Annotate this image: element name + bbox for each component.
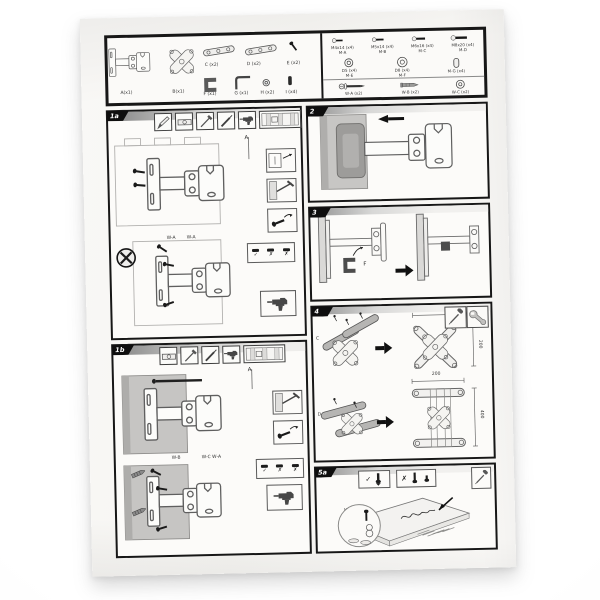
step-tab: 5a [315, 467, 337, 477]
washer-d8-icon [395, 56, 408, 67]
section-step-3: 3 [308, 203, 492, 302]
hardware-item: D8 (x4) M-F [394, 56, 409, 78]
wrench-icon [466, 306, 488, 328]
hardware-item: W-C (x2) [452, 79, 470, 95]
drill-inset-box [266, 484, 303, 511]
concrete-wall-icon [243, 344, 285, 363]
part-i-spacer-icon [288, 76, 292, 85]
cable-clip-diagram [310, 205, 489, 299]
section-step-4: 4 [310, 302, 496, 463]
product-photo: A(x1) B(x1) C (x2) D (x2) E (x2) F (x1) … [0, 0, 600, 600]
hardware-item: M6x16 (x4) M-C [411, 33, 434, 53]
screwdriver-inset-box [471, 467, 491, 489]
depth-mark: ✓ [263, 468, 267, 473]
hardware-size: W-B (x2) [402, 89, 419, 95]
hardware-row-wall: W-A (x2) W-B (x2) W-C [323, 76, 484, 98]
check-mark: ✓ [365, 476, 371, 483]
parts-illustrations [107, 33, 321, 102]
part-f-clip-icon [204, 78, 216, 92]
drill-bit-icon [196, 112, 214, 130]
detail-inset-drilling [266, 178, 297, 203]
lag-bolt-icon [338, 81, 368, 91]
hardware-item: M5x14 (x4) M-B [371, 34, 394, 54]
hardware-row-screws: M4x14 (x4) M-A M5x14 (x4) M-B [322, 30, 484, 58]
drill-bit-icon [180, 346, 198, 364]
depth-mark: ✗ [278, 468, 282, 473]
pencil-icon [154, 113, 172, 131]
screw-depth-guide: ✓ ✗ ✗ [247, 242, 295, 263]
depth-mark: ✗ [269, 252, 273, 257]
section-step-5a: 5a ✓ ✗ [314, 463, 498, 554]
part-b-plate-icon [168, 48, 196, 76]
drill-inset-box [260, 290, 297, 317]
hardware-code: M-C [418, 48, 426, 53]
part-g-allen-key-icon [236, 77, 250, 89]
cable-clip-part [343, 258, 355, 273]
hardware-size: W-C (x2) [452, 89, 469, 95]
section-step-1b: 1b A W-B W-C W-A [111, 340, 312, 558]
hardware-item: M4x14 (x4) M-A [331, 35, 354, 55]
required-tools [159, 344, 285, 365]
screw-too-long-icon [410, 471, 419, 485]
drill-icon [222, 345, 240, 363]
cross-mark: ✗ [401, 475, 407, 482]
screw-too-short-icon [422, 471, 431, 485]
marker-icon [217, 111, 235, 129]
screwdriver-icon [444, 306, 466, 328]
wood-stud-wall-icon [259, 110, 301, 129]
tv-back-diagram [317, 489, 495, 551]
hardware-item: M-G (x4) [447, 58, 465, 75]
detail-inset-screwing [267, 208, 298, 233]
hardware-code: M-E [346, 73, 354, 78]
hardware-size: W-A (x2) [345, 91, 362, 97]
detail-inset-screwing [273, 420, 304, 445]
wrong-screw-box: ✗ [396, 469, 436, 488]
drill-icon [272, 489, 296, 506]
drill-icon [266, 295, 290, 312]
washer-wc-icon [454, 79, 466, 89]
level-icon [159, 347, 177, 365]
marker-icon [201, 346, 219, 364]
included-hardware: M4x14 (x4) M-A M5x14 (x4) M-B [322, 30, 484, 99]
section-step-1a: 1a [106, 106, 307, 340]
concrete-mounting-diagram [116, 367, 270, 554]
instruction-sheet: A(x1) B(x1) C (x2) D (x2) E (x2) F (x1) … [80, 9, 517, 576]
hardware-item: W-A (x2) [338, 81, 368, 96]
screwdriver-icon [473, 470, 489, 486]
hardware-item: W-B (x2) [399, 80, 421, 95]
spacer-icon [451, 58, 462, 69]
correct-screw-box: ✓ [358, 470, 390, 489]
washer-d5-icon [343, 58, 355, 68]
drill-icon [238, 111, 256, 129]
screw-depth-guide: ✓ ✗ ✗ [256, 458, 304, 479]
depth-mark: ✗ [293, 468, 297, 473]
included-parts: A(x1) B(x1) C (x2) D (x2) E (x2) F (x1) … [107, 33, 323, 103]
depth-mark: ✓ [254, 252, 258, 257]
parts-list-box: A(x1) B(x1) C (x2) D (x2) E (x2) F (x1) … [104, 27, 488, 107]
magnifier-circle [338, 504, 381, 547]
stud-mounting-diagram [110, 133, 264, 336]
hardware-code: M-A [339, 50, 347, 55]
part-e-screw-icon [289, 41, 298, 52]
depth-mark: ✗ [284, 252, 288, 257]
level-icon [175, 112, 193, 130]
section-step-2: 2 [306, 102, 490, 203]
part-a-mount-icon [109, 48, 150, 76]
screw-up-icon [373, 472, 383, 486]
cable-clip-installed [441, 242, 450, 251]
detail-inset-drilling [272, 390, 303, 415]
detail-inset-bracket [266, 148, 297, 173]
cover-install-diagram [308, 104, 487, 200]
part-d-arm-icon [245, 44, 277, 55]
hardware-code: M-D [459, 47, 467, 52]
part-c-arm-icon [203, 45, 235, 56]
hardware-item: M8x20 (x4) M-D [451, 33, 475, 53]
hardware-item: D5 (x4) M-E [342, 58, 357, 79]
hardware-size: M-G (x4) [448, 68, 466, 74]
required-tools [444, 306, 488, 329]
hardware-code: M-B [379, 49, 387, 54]
required-tools [154, 110, 301, 131]
part-h-washer-icon [263, 79, 270, 86]
